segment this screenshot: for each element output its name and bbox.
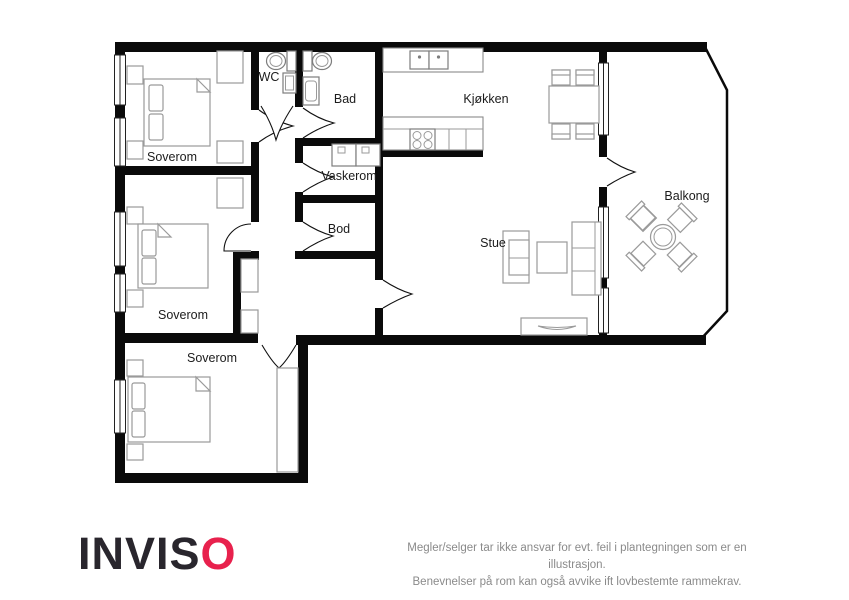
bathroom-door-swing: [303, 108, 334, 138]
balcony-door-swing: [607, 158, 635, 186]
tv-bench-icon: [521, 318, 587, 335]
pillow-icon: [142, 258, 156, 284]
dining-set: [549, 70, 599, 139]
pillow-icon: [149, 114, 163, 140]
wardrobe-icon: [241, 310, 258, 333]
toilet-tank-icon: [287, 51, 296, 71]
dining-table-icon: [549, 86, 599, 123]
disclaimer-line-1: Megler/selger tar ikke ansvar for evt. f…: [383, 540, 771, 574]
wardrobe-icon: [217, 141, 243, 163]
nightstand-icon: [127, 360, 143, 376]
livingroom-door-swing: [383, 280, 412, 308]
pillow-icon: [132, 411, 145, 437]
room-label-kitchen: Kjøkken: [463, 92, 508, 106]
room-label-bedroom2: Soverom: [158, 308, 208, 322]
disclaimer-line-2: Benevnelser på rom kan også avvike ift l…: [383, 574, 771, 591]
hallway-furniture: [241, 259, 258, 333]
logo-text-main: INVIS: [78, 528, 201, 579]
room-label-laundry: Vaskerom: [321, 169, 376, 183]
nightstand-icon: [127, 290, 143, 307]
wardrobe-icon: [241, 259, 258, 292]
floorplan-page: Soverom WC Bad Vaskerom Bod Kjøkken Sove…: [0, 0, 849, 600]
nightstand-icon: [127, 141, 143, 159]
nightstand-icon: [127, 207, 143, 224]
inviso-logo: INVISO: [78, 531, 237, 576]
wardrobe-icon: [217, 178, 243, 208]
coffee-table-icon: [537, 242, 567, 273]
logo-text-accent: O: [201, 528, 237, 579]
pillow-icon: [149, 85, 163, 111]
bedroom2-door-swing: [224, 224, 251, 251]
disclaimer-text: Megler/selger tar ikke ansvar for evt. f…: [383, 540, 771, 591]
sink-basin-icon: [410, 51, 429, 69]
room-label-bathroom: Bad: [334, 92, 356, 106]
nightstand-icon: [127, 66, 143, 84]
laundry-appliances: [332, 144, 380, 166]
room-label-bedroom1: Soverom: [147, 150, 197, 164]
toilet-tank-icon: [303, 51, 312, 71]
bedroom3-door-swing: [262, 345, 296, 368]
floorplan-drawing: Soverom WC Bad Vaskerom Bod Kjøkken Sove…: [0, 0, 849, 510]
livingroom-furniture: [503, 222, 601, 335]
room-label-wc: WC: [259, 70, 280, 84]
bathroom-fixtures: [303, 51, 332, 105]
room-label-bedroom3: Soverom: [187, 351, 237, 365]
sofa-icon: [572, 222, 601, 295]
room-label-storage: Bod: [328, 222, 350, 236]
wardrobe-icon: [217, 51, 243, 83]
chair-icon: [626, 201, 657, 232]
bedroom1-furniture: [127, 51, 243, 163]
room-label-balcony: Balkong: [664, 189, 709, 203]
room-labels: Soverom WC Bad Vaskerom Bod Kjøkken Sove…: [147, 70, 710, 365]
bedroom3-furniture: [127, 360, 298, 472]
room-label-livingroom: Stue: [480, 236, 506, 250]
pillow-icon: [142, 230, 156, 256]
wardrobe-icon: [277, 368, 298, 472]
pillow-icon: [132, 383, 145, 409]
balcony-furniture: [626, 201, 697, 272]
sink-basin-icon: [429, 51, 448, 69]
nightstand-icon: [127, 444, 143, 460]
